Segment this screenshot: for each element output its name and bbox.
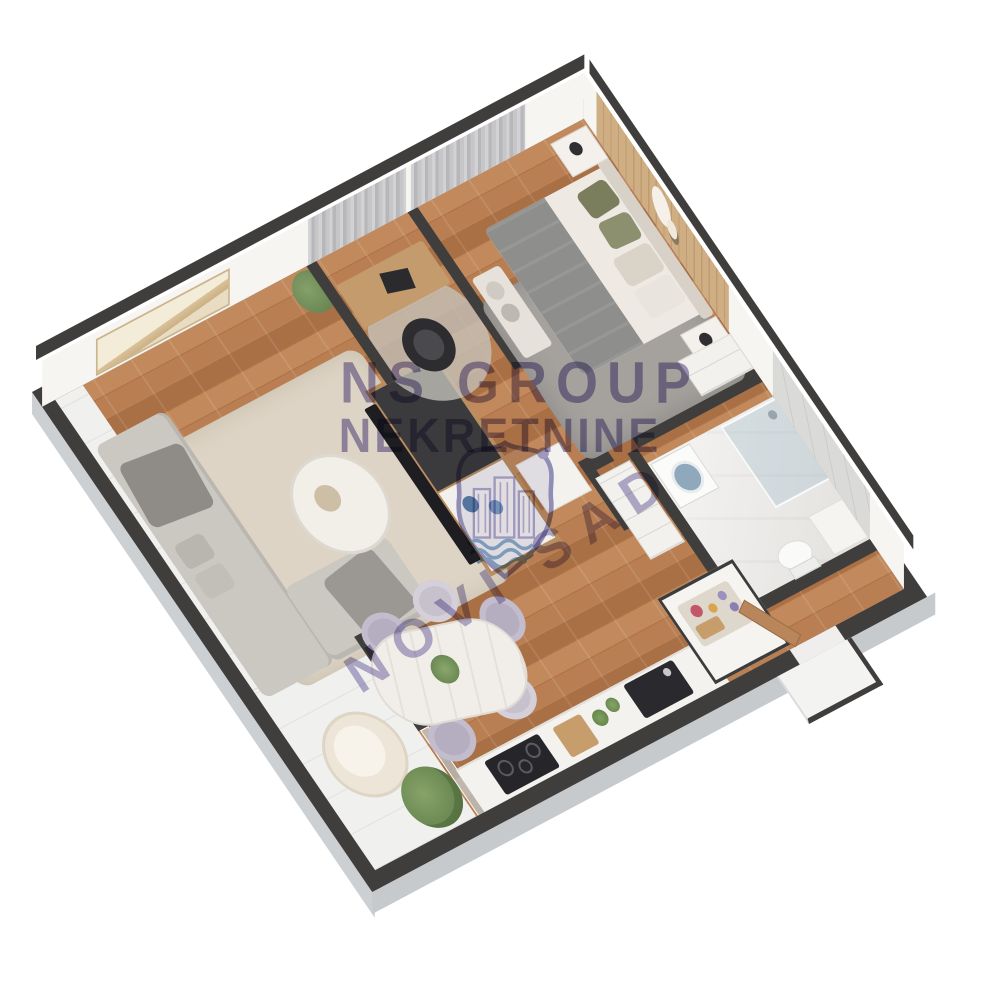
floorplan-render: NS GROUP NEKRETNINE NOVI SAD xyxy=(0,0,1000,1000)
exterior-wall-ring xyxy=(32,97,927,892)
floor-plane xyxy=(32,97,927,892)
